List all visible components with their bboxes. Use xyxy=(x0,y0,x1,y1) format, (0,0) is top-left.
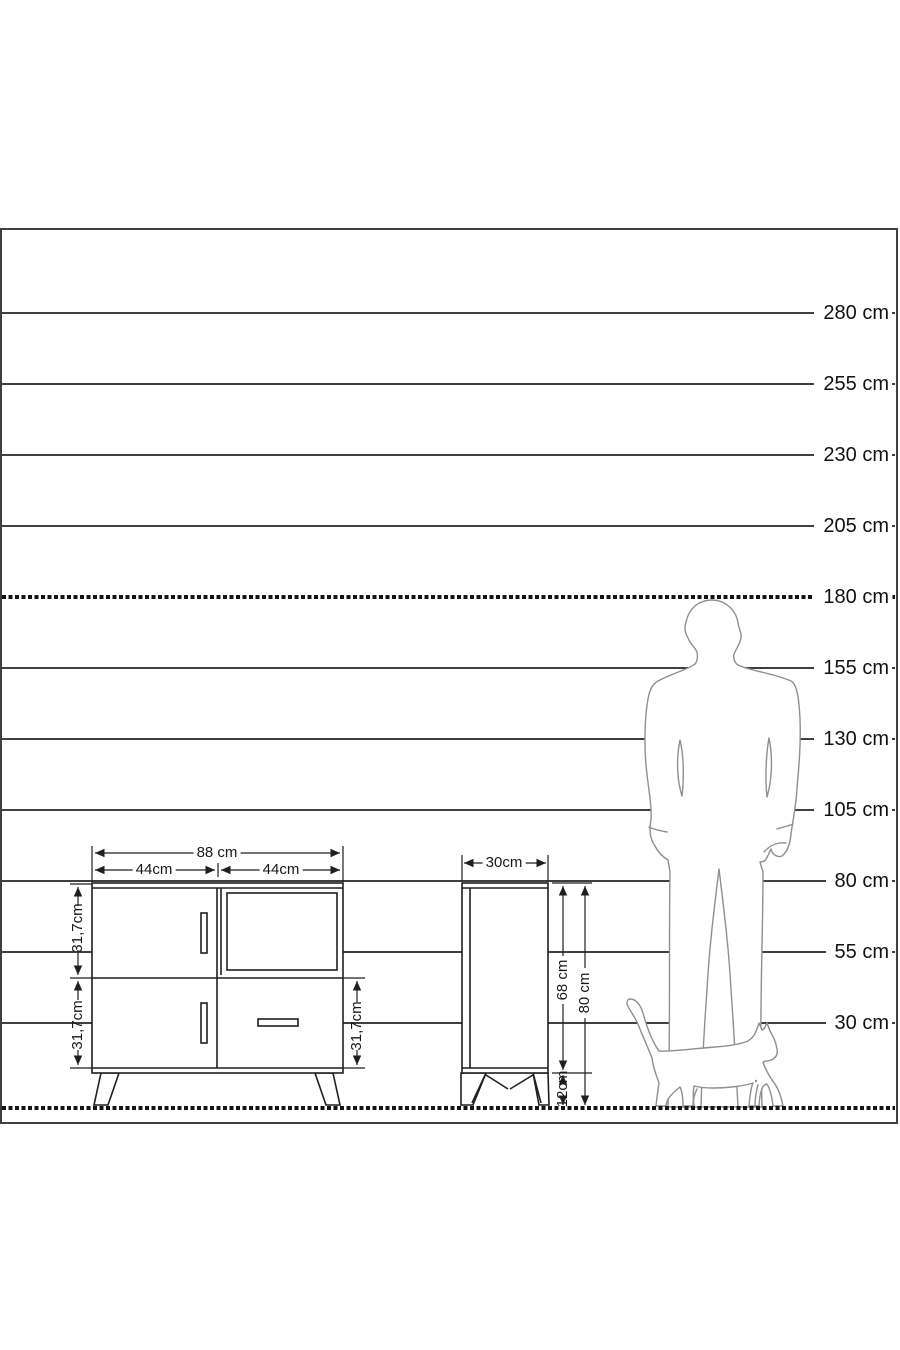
dim-left-section-width: 44cm xyxy=(133,862,176,878)
dimension-diagram: 280 cm255 cm230 cm205 cm180 cm155 cm130 … xyxy=(0,0,900,1350)
front-leg-right xyxy=(315,1073,340,1105)
side-leg-brace-left xyxy=(486,1075,508,1089)
scale-tick-label: 280 cm xyxy=(814,301,892,325)
scale-tick-label: 230 cm xyxy=(814,443,892,467)
man-silhouette xyxy=(645,600,800,1107)
dim-leg-height: 12cm xyxy=(555,1071,571,1108)
ground-line xyxy=(2,1106,895,1110)
scale-tick-label: 180 cm xyxy=(814,585,892,609)
scale-tick-label: 80 cm xyxy=(826,869,892,893)
cabinet-side-view xyxy=(461,883,549,1105)
dim-carcass-height: 68 cm xyxy=(555,960,571,1001)
side-carcass xyxy=(462,883,548,1073)
dim-right-section-width: 44cm xyxy=(260,862,303,878)
dim-overall-width: 88 cm xyxy=(194,845,241,861)
door-handle-bottom xyxy=(201,1003,207,1043)
dim-upper-section-height: 31,7cm xyxy=(70,903,86,952)
scale-line-reference-180 xyxy=(2,595,895,599)
scale-tick-label: 155 cm xyxy=(814,656,892,680)
man-outline xyxy=(645,600,800,1107)
door-handle-top xyxy=(201,913,207,953)
scale-tick-label: 55 cm xyxy=(826,940,892,964)
dim-total-height: 80 cm xyxy=(577,973,593,1014)
scale-tick-label: 130 cm xyxy=(814,727,892,751)
scale-tick-label: 255 cm xyxy=(814,372,892,396)
drawing-layer xyxy=(0,0,900,1350)
drawer-handle xyxy=(258,1019,298,1026)
dim-lower-height-right: 31,7cm xyxy=(349,1001,365,1050)
front-leg-left xyxy=(94,1073,119,1105)
dim-depth: 30cm xyxy=(483,855,526,871)
dim-lower-height-left: 31,7cm xyxy=(70,1000,86,1049)
scale-tick-label: 205 cm xyxy=(814,514,892,538)
cabinet-front-view xyxy=(92,883,343,1105)
cat-mark xyxy=(755,1080,757,1082)
scale-tick-label: 105 cm xyxy=(814,798,892,822)
scale-tick-label: 30 cm xyxy=(826,1011,892,1035)
side-leg-brace-right xyxy=(510,1075,533,1089)
